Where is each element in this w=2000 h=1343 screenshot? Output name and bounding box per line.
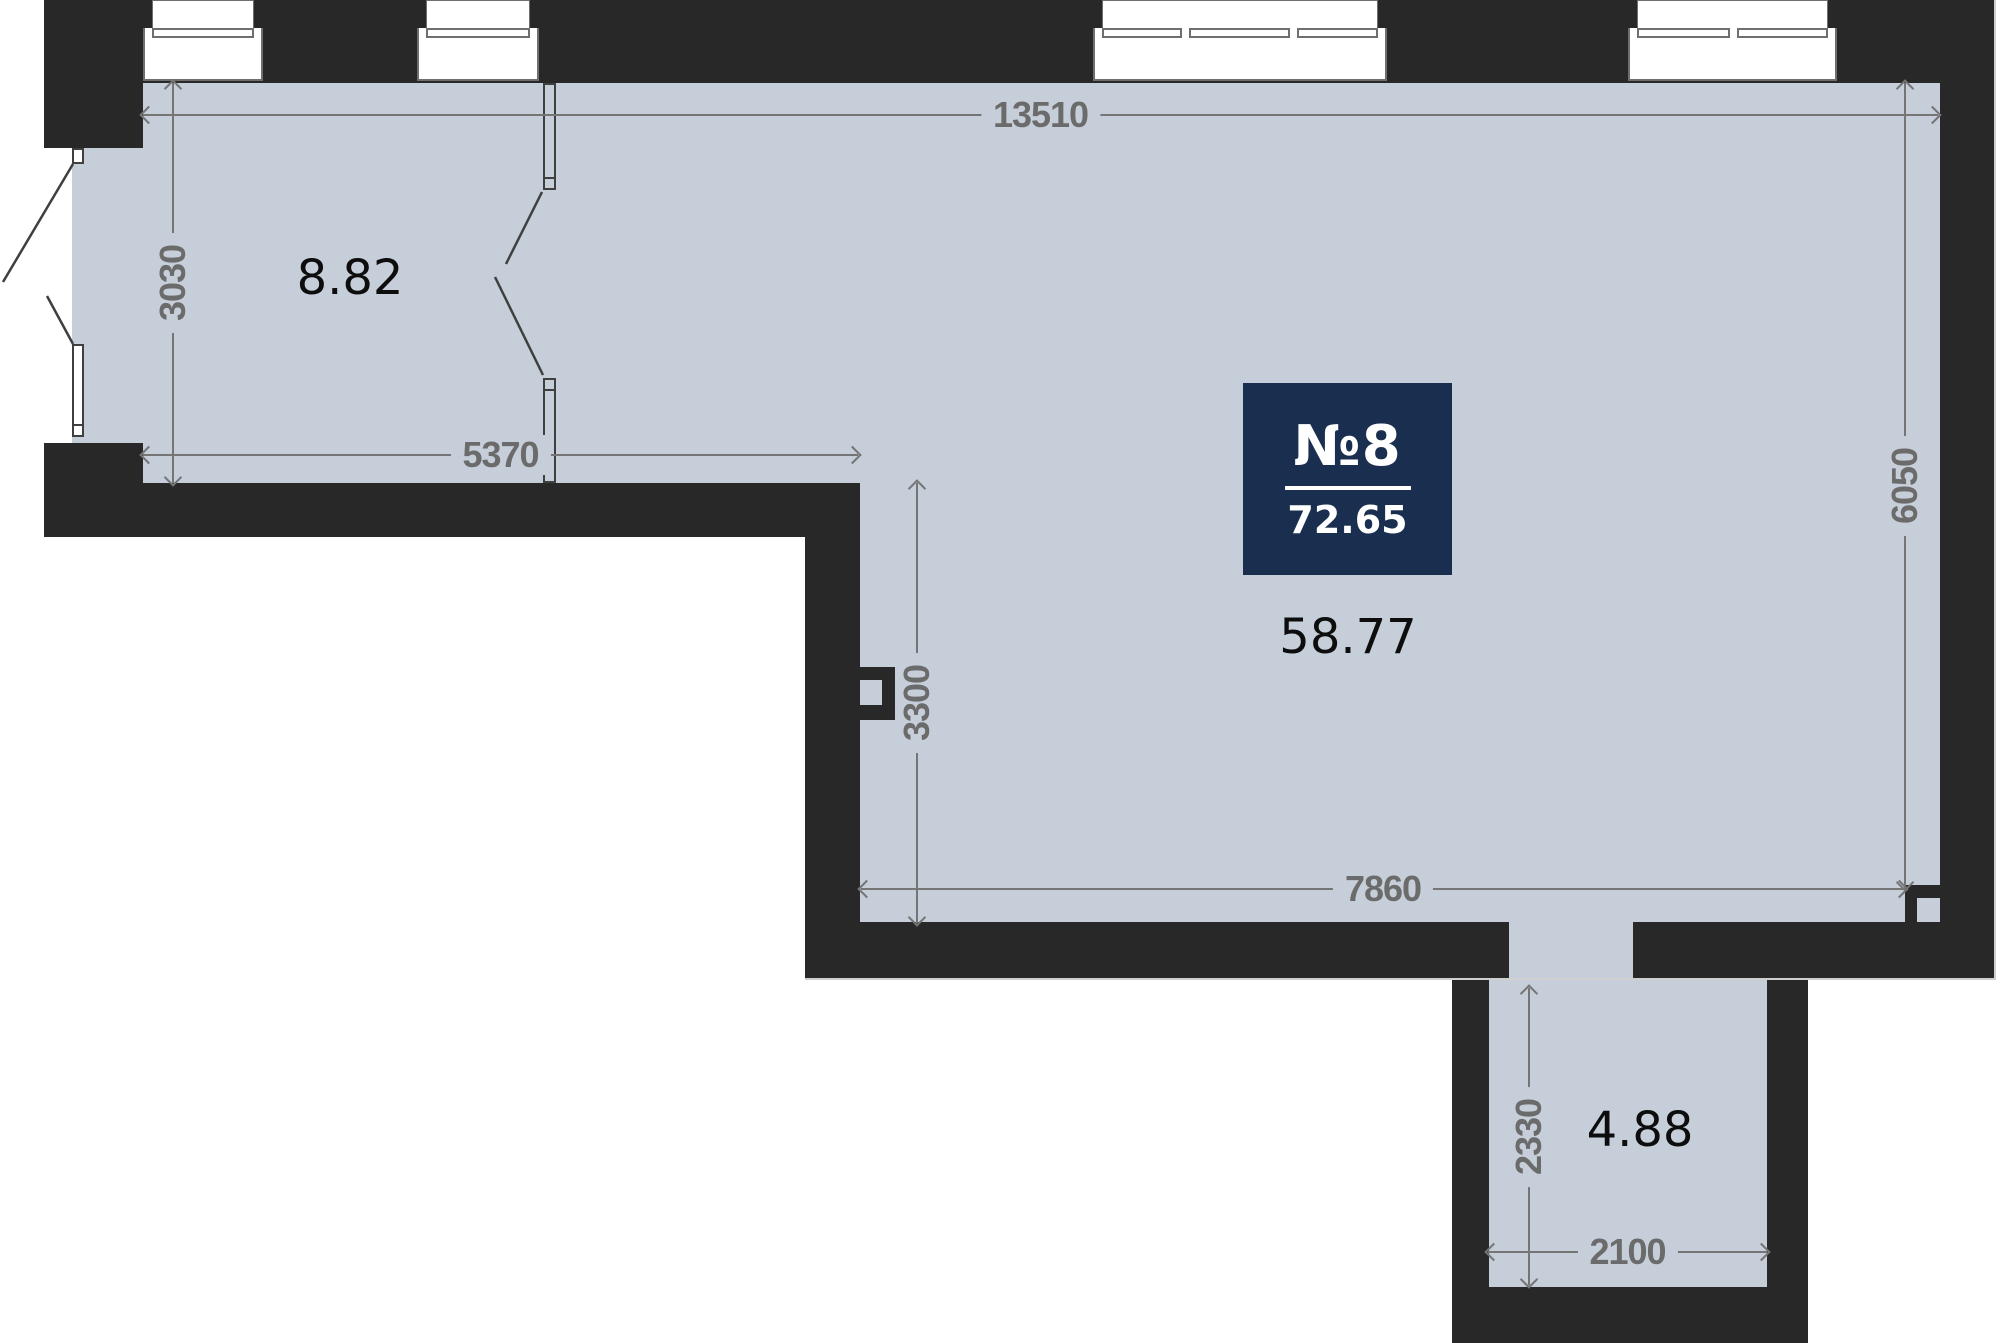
window-mullion xyxy=(417,28,428,38)
window-frame xyxy=(143,28,263,38)
window-frame xyxy=(1093,28,1387,38)
window-outer-pane xyxy=(152,0,254,28)
floor-plan: 13510 3030 5370 6050 3300 7860 2330 xyxy=(0,0,2000,1343)
dimension-room1-height: 3030 xyxy=(156,83,190,483)
window-mullion xyxy=(1728,28,1739,38)
dim-label: 7860 xyxy=(1333,869,1433,909)
dim-arrow-up-icon xyxy=(1896,79,1914,97)
door-jamb-tick xyxy=(72,424,84,435)
dimension-inner-wall-height: 3300 xyxy=(900,483,934,923)
area-label-ext-room: 4.88 xyxy=(1587,1106,1694,1154)
door-swing-line xyxy=(47,296,73,344)
floor-room1 xyxy=(143,83,860,483)
window-1 xyxy=(143,0,263,83)
wall-main-bottom-right xyxy=(1633,922,1996,978)
dimension-right-height: 6050 xyxy=(1888,83,1922,888)
wall-right xyxy=(1940,0,1996,978)
dim-arrow-left-icon xyxy=(139,106,157,124)
wall-main-bottom-left xyxy=(805,922,1509,978)
dim-label: 13510 xyxy=(981,95,1100,135)
window-frame xyxy=(417,28,539,38)
window-mullion xyxy=(1093,28,1104,38)
window-outer-pane xyxy=(1637,0,1828,28)
window-mullion xyxy=(1826,28,1837,38)
dimension-top-width: 13510 xyxy=(143,98,1938,132)
wall-bottom-left-block xyxy=(44,443,143,537)
door-swing-line xyxy=(3,164,73,282)
dim-arrow-left-icon xyxy=(1484,1243,1502,1261)
area-label-main-room: 58.77 xyxy=(1279,613,1416,661)
partition-end-cap xyxy=(543,380,556,391)
unit-number: №8 xyxy=(1293,419,1401,475)
window-mullion xyxy=(252,28,263,38)
wall-main-left xyxy=(805,537,860,922)
window-2 xyxy=(417,0,539,83)
window-mullion xyxy=(1180,28,1191,38)
floor-passage xyxy=(1509,922,1633,978)
window-mullion xyxy=(143,28,154,38)
unit-total-area: 72.65 xyxy=(1287,501,1407,539)
dimension-bottom-width: 7860 xyxy=(861,872,1905,906)
window-mullion xyxy=(1628,28,1639,38)
partition-end-cap xyxy=(543,177,556,188)
wall-room1-bottom xyxy=(143,483,860,537)
pilaster-bottom-right-notch xyxy=(1917,898,1940,922)
window-outer-pane xyxy=(1102,0,1378,28)
unit-badge: №8 72.65 xyxy=(1243,383,1452,575)
dim-arrow-left-icon xyxy=(139,446,157,464)
dim-label: 3030 xyxy=(153,233,193,333)
slab-edge-right xyxy=(1994,0,1996,980)
window-sill xyxy=(143,38,263,81)
pilaster-left-notch xyxy=(860,680,882,705)
window-3 xyxy=(1093,0,1387,83)
dim-label: 2100 xyxy=(1577,1232,1677,1272)
window-outer-pane xyxy=(426,0,530,28)
dim-arrow-left-icon xyxy=(857,880,875,898)
badge-divider xyxy=(1285,486,1411,490)
window-sill xyxy=(1628,38,1837,81)
window-mullion xyxy=(1288,28,1299,38)
dim-arrow-up-icon xyxy=(908,479,926,497)
dimension-room1-width: 5370 xyxy=(143,438,858,472)
dimension-ext-width: 2100 xyxy=(1488,1235,1767,1269)
window-frame xyxy=(1628,28,1837,38)
window-mullion xyxy=(528,28,539,38)
door-jamb-top xyxy=(72,148,84,164)
window-sill xyxy=(417,38,539,81)
wall-ext-bottom xyxy=(1452,1287,1808,1343)
window-4 xyxy=(1628,0,1837,83)
door-jamb-bottom xyxy=(72,344,84,437)
dim-label: 5370 xyxy=(450,435,550,475)
dim-label: 6050 xyxy=(1885,435,1925,535)
window-sill xyxy=(1093,38,1387,81)
slab-edge-bottom xyxy=(805,978,1996,980)
wall-top-left-block xyxy=(44,0,143,148)
dim-label: 3300 xyxy=(897,653,937,753)
dim-arrow-up-icon xyxy=(164,79,182,97)
dim-label: 2330 xyxy=(1509,1086,1549,1186)
area-label-room1: 8.82 xyxy=(297,254,404,302)
dim-arrow-up-icon xyxy=(1520,984,1538,1002)
window-mullion xyxy=(1376,28,1387,38)
